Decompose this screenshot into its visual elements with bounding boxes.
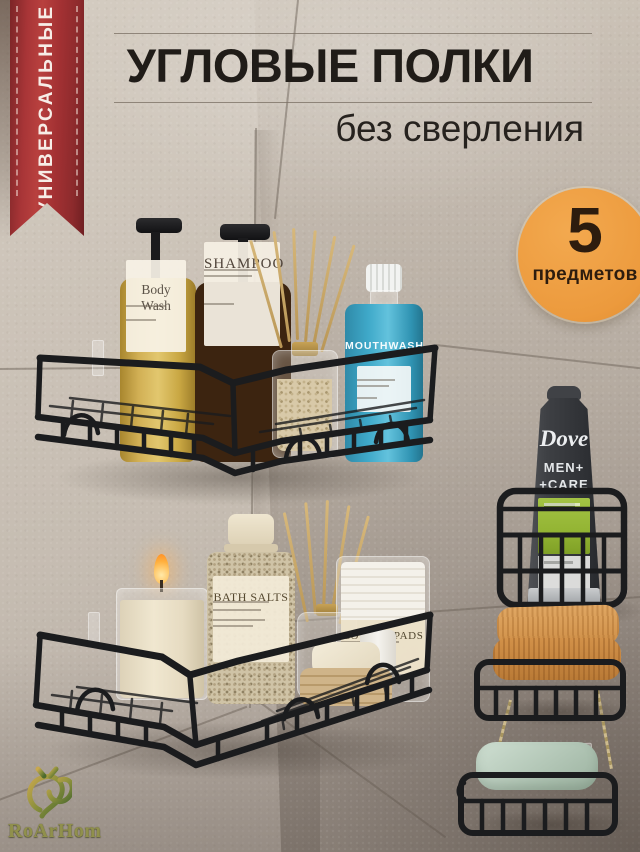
pump-dispenser-icon [136,218,182,233]
items-count-badge: 5 предметов [518,188,640,322]
label-microtext-line [126,319,156,321]
ribbon-label: УНИВЕРСАЛЬНЫЕ [36,4,58,213]
brand-knot-icon [20,766,72,820]
bottle-cap [547,386,581,400]
bottom-corner-shelf [22,583,447,788]
body-wash-label-text: Body Wash [126,282,186,314]
label-microtext-line [204,275,252,277]
badge-count-label: предметов [518,264,640,286]
top-corner-shelf [28,328,448,483]
label-microtext-line [126,305,166,307]
bottle-cap [366,264,402,292]
page-title: УГЛОВЫЕ ПОЛКИ [50,38,610,93]
dove-men-text: MEN+ [522,460,606,475]
label-microtext-line [204,269,260,271]
bottle-cap [228,514,274,546]
ribbon-stitch-right [76,6,78,196]
product-card: УГЛОВЫЕ ПОЛКИ без сверления УНИВЕРСАЛЬНЫ… [0,0,640,852]
brand-logo-text: RoArHom [8,820,178,843]
ribbon-stitch-left [16,6,18,196]
dove-brand-text: Dove [522,426,606,452]
title-divider-bottom [114,102,592,103]
ribbon-fold-shadow [0,0,11,242]
wall-basket-sponges [472,646,628,726]
wall-basket-soap [456,753,622,839]
reed-stick [292,228,299,340]
title-divider-top [114,33,592,34]
universal-ribbon: УНИВЕРСАЛЬНЫЕ [10,0,84,236]
bottle-cap-lip [224,544,278,552]
page-subtitle: без сверления [264,108,584,150]
label-microtext-line [204,303,234,305]
wall-basket-dove [494,485,630,615]
badge-count: 5 [518,198,640,262]
